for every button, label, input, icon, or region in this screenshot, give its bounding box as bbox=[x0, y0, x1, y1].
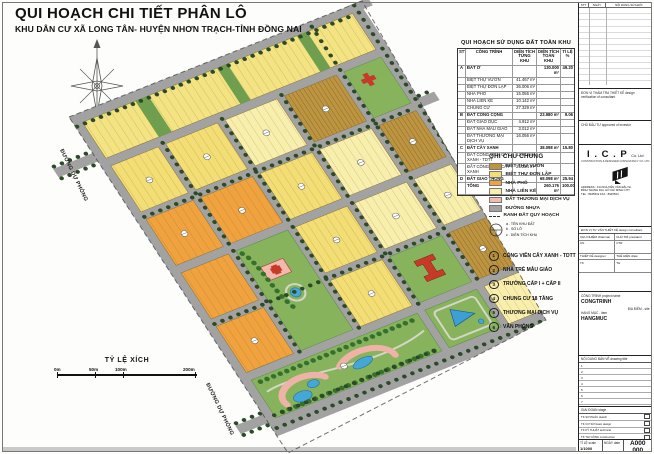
table-row: A ĐẤT Ở 130.000 m² 49.20 bbox=[458, 66, 574, 78]
numbered-note: 5 THƯƠNG MẠI DỊCH VỤ bbox=[489, 308, 589, 318]
note-number-badge: 5 bbox=[489, 308, 499, 318]
icp-logo bbox=[607, 165, 637, 185]
legend-color-chip bbox=[489, 180, 502, 187]
legend-item-label: NHÀ LIÊN KẾ bbox=[506, 189, 537, 194]
legend-title: GHI CHÚ CHUNG bbox=[489, 153, 579, 160]
company-phone: TEL : 8945532 FAX : 8945534 bbox=[581, 193, 650, 197]
lot-badge-symbol-icon bbox=[489, 223, 503, 237]
legend-item-label: ĐẤT THƯƠNG MẠI DỊCH VỤ bbox=[506, 197, 570, 202]
table-row: NHÀ PHỐ 15.056 m² bbox=[458, 92, 574, 99]
note-label: CÔNG VIÊN CÂY XANH - TDTT bbox=[503, 253, 576, 259]
legend-color-chip bbox=[489, 163, 502, 170]
company-subtitle: CONSTRUCTION & DESIGNER CONSULTANCY CO. … bbox=[581, 160, 650, 163]
stage-checkbox bbox=[644, 414, 649, 419]
verification-section: ĐƠN VỊ THẨM TRA THIẾT KẾ design verifica… bbox=[579, 89, 652, 121]
drawing-number: A000 000 bbox=[624, 440, 652, 452]
scale-cell: TỈ LỆ scale 1/1000 bbox=[579, 440, 603, 452]
legend-item: BIỆT THỰ ĐƠN LẬP bbox=[489, 171, 579, 178]
table-row: ĐẤT NHÀ MẪU GIÁO 3.012 m² bbox=[458, 127, 574, 134]
table-row: BIỆT THỰ VƯỜN 41.467 m² bbox=[458, 78, 574, 85]
drawing-title-line: 7 bbox=[579, 399, 652, 405]
table-row: CHUNG CƯ 27.329 m² bbox=[458, 106, 574, 113]
table-header-row: STT CÔNG TRÌNH DIỆN TÍCH TỪNG KHU DIỆN T… bbox=[458, 49, 574, 66]
revision-table-rows bbox=[579, 8, 652, 85]
note-number-badge: 4 bbox=[489, 294, 499, 304]
numbered-note: 4 CHUNG CƯ 18 TẦNG bbox=[489, 294, 589, 304]
legend-color-chip bbox=[489, 205, 502, 212]
note-number-badge: 6 bbox=[489, 322, 499, 332]
legend: GHI CHÚ CHUNG BIỆT THỰ VƯỜN BIỆT THỰ ĐƠN… bbox=[489, 153, 579, 238]
numbered-note: 6 VĂN PHÒNG bbox=[489, 322, 589, 332]
legend-item: RANH ĐẤT QUY HOẠCH bbox=[489, 213, 579, 218]
note-label: VĂN PHÒNG bbox=[503, 324, 533, 330]
note-label: THƯƠNG MẠI DỊCH VỤ bbox=[503, 310, 558, 316]
investor-section: CHỦ ĐẦU TƯ approved of investor bbox=[579, 121, 652, 145]
revision-table: STT NGÀY NỘI DUNG SỬA ĐỔI bbox=[579, 2, 652, 89]
table-row: ĐẤT GIÁO DỤC 4.912 m² bbox=[458, 120, 574, 127]
page-subtitle: KHU DÂN CƯ XÃ LONG TÂN- HUYỆN NHƠN TRẠCH… bbox=[15, 24, 302, 34]
legend-item: ĐƯỜNG NHỰA bbox=[489, 205, 579, 212]
drawing-title-section: NỘI DUNG BẢN VẼ drawing title 1234567 bbox=[579, 356, 652, 407]
scale-bar: TỶ LỆ XÍCH 0m 50m 100m 200m bbox=[57, 357, 207, 376]
legend-item: NHÀ PHỐ bbox=[489, 180, 579, 187]
land-use-table-title: QUI HOẠCH SỬ DỤNG ĐẤT TOÀN KHU bbox=[457, 40, 575, 46]
note-number-badge: 1 bbox=[489, 251, 499, 261]
stage-checkbox bbox=[644, 421, 649, 426]
legend-color-chip bbox=[489, 197, 502, 204]
legend-item-label: BIỆT THỰ ĐƠN LẬP bbox=[506, 172, 552, 177]
page-title: QUI HOẠCH CHI TIẾT PHÂN LÔ bbox=[15, 5, 302, 22]
stage-row: TK KỸ THUẬT technical bbox=[579, 428, 652, 435]
legend-item-label: NHÀ PHỐ bbox=[506, 181, 528, 186]
project-section: CÔNG TRÌNH project name CONGTRINH ĐỊA ĐI… bbox=[579, 292, 652, 356]
signature-row: TK TH bbox=[579, 260, 652, 273]
stage-row: TK SƠ PHÁC sketch bbox=[579, 414, 652, 421]
numbered-notes: 1 CÔNG VIÊN CÂY XANH - TDTT 2 NHÀ TRẺ MẪ… bbox=[489, 251, 589, 337]
title-block: STT NGÀY NỘI DUNG SỬA ĐỔI ĐƠN VỊ THẨM TR… bbox=[578, 2, 652, 452]
legend-color-chip bbox=[489, 216, 500, 217]
scale-bar-line bbox=[57, 374, 197, 376]
item-name: HANGMUC bbox=[581, 316, 650, 322]
project-name: CONGTRINH bbox=[581, 299, 650, 305]
note-number-badge: 3 bbox=[489, 280, 499, 290]
stage-row: TK CƠ SỞ basic design bbox=[579, 421, 652, 428]
scale-date-number-section: TỈ LỆ scale 1/1000 NGÀY date A000 000 bbox=[579, 440, 652, 452]
company-name: I . C . P Co. Ltd bbox=[581, 149, 650, 160]
note-label: TRƯỜNG CẤP I + CẤP II bbox=[503, 281, 561, 287]
numbered-note: 1 CÔNG VIÊN CÂY XANH - TDTT bbox=[489, 251, 589, 261]
road-label-bottom: ĐƯỜNG DỰ PHÓNG bbox=[204, 381, 236, 436]
numbered-note: 3 TRƯỜNG CẤP I + CẤP II bbox=[489, 280, 589, 290]
note-label: NHÀ TRẺ MẪU GIÁO bbox=[503, 267, 552, 273]
legend-item: NHÀ LIÊN KẾ bbox=[489, 188, 579, 195]
stage-section: GIAI ĐOẠN stage TK SƠ PHÁC sketch TK CƠ … bbox=[579, 407, 652, 440]
drawing-header: QUI HOẠCH CHI TIẾT PHÂN LÔ KHU DÂN CƯ XÃ… bbox=[15, 5, 302, 34]
note-label: CHUNG CƯ 18 TẦNG bbox=[503, 296, 553, 302]
note-number-badge: 2 bbox=[489, 265, 499, 275]
company-block: I . C . P Co. Ltd CONSTRUCTION & DESIGNE… bbox=[579, 145, 652, 227]
table-row: ĐẤT THƯƠNG MẠI DỊCH VỤ 16.056 m² bbox=[458, 134, 574, 146]
legend-symbol: a . TÊN KHU ĐẤTb . SỐ LÔc . DIỆN TÍCH KH… bbox=[489, 222, 579, 238]
table-row: B ĐẤT CÔNG CỘNG 23.980 m² 9.06 bbox=[458, 113, 574, 120]
stage-checkbox bbox=[644, 428, 649, 433]
legend-color-chip bbox=[489, 171, 502, 178]
signature-row: THIẾT KẾ designer THỂ HIỆN draw bbox=[579, 254, 652, 261]
legend-item-label: ĐƯỜNG NHỰA bbox=[506, 206, 540, 211]
numbered-note: 2 NHÀ TRẺ MẪU GIÁO bbox=[489, 265, 589, 275]
legend-symbol-note: c . DIỆN TÍCH KHU bbox=[506, 233, 537, 238]
table-row: C ĐẤT CÂY XANH 38.098 m² 15.80 bbox=[458, 145, 574, 152]
table-row: NHÀ LIÊN KẾ 10.142 m² bbox=[458, 99, 574, 106]
legend-item: ĐẤT THƯƠNG MẠI DỊCH VỤ bbox=[489, 197, 579, 204]
legend-item-label: RANH ĐẤT QUY HOẠCH bbox=[504, 213, 560, 218]
signature-row: CHỦ NHIỆM chairman CHỦ TRÌ president bbox=[579, 234, 652, 241]
scale-bar-ticks: 0m 50m 100m 200m bbox=[57, 367, 207, 373]
legend-item-label: BIỆT THỰ VƯỜN bbox=[506, 164, 545, 169]
signature-row: CN CTR bbox=[579, 241, 652, 254]
legend-color-chip bbox=[489, 188, 502, 195]
legend-item: BIỆT THỰ VƯỜN bbox=[489, 163, 579, 170]
table-row: BIỆT THỰ ĐƠN LẬP 36.006 m² bbox=[458, 85, 574, 92]
signature-section: ĐƠN VỊ TƯ VẤN THIẾT KẾ design consultant… bbox=[579, 227, 652, 292]
scale-bar-title: TỶ LỆ XÍCH bbox=[57, 357, 197, 364]
date-cell: NGÀY date bbox=[603, 440, 624, 452]
